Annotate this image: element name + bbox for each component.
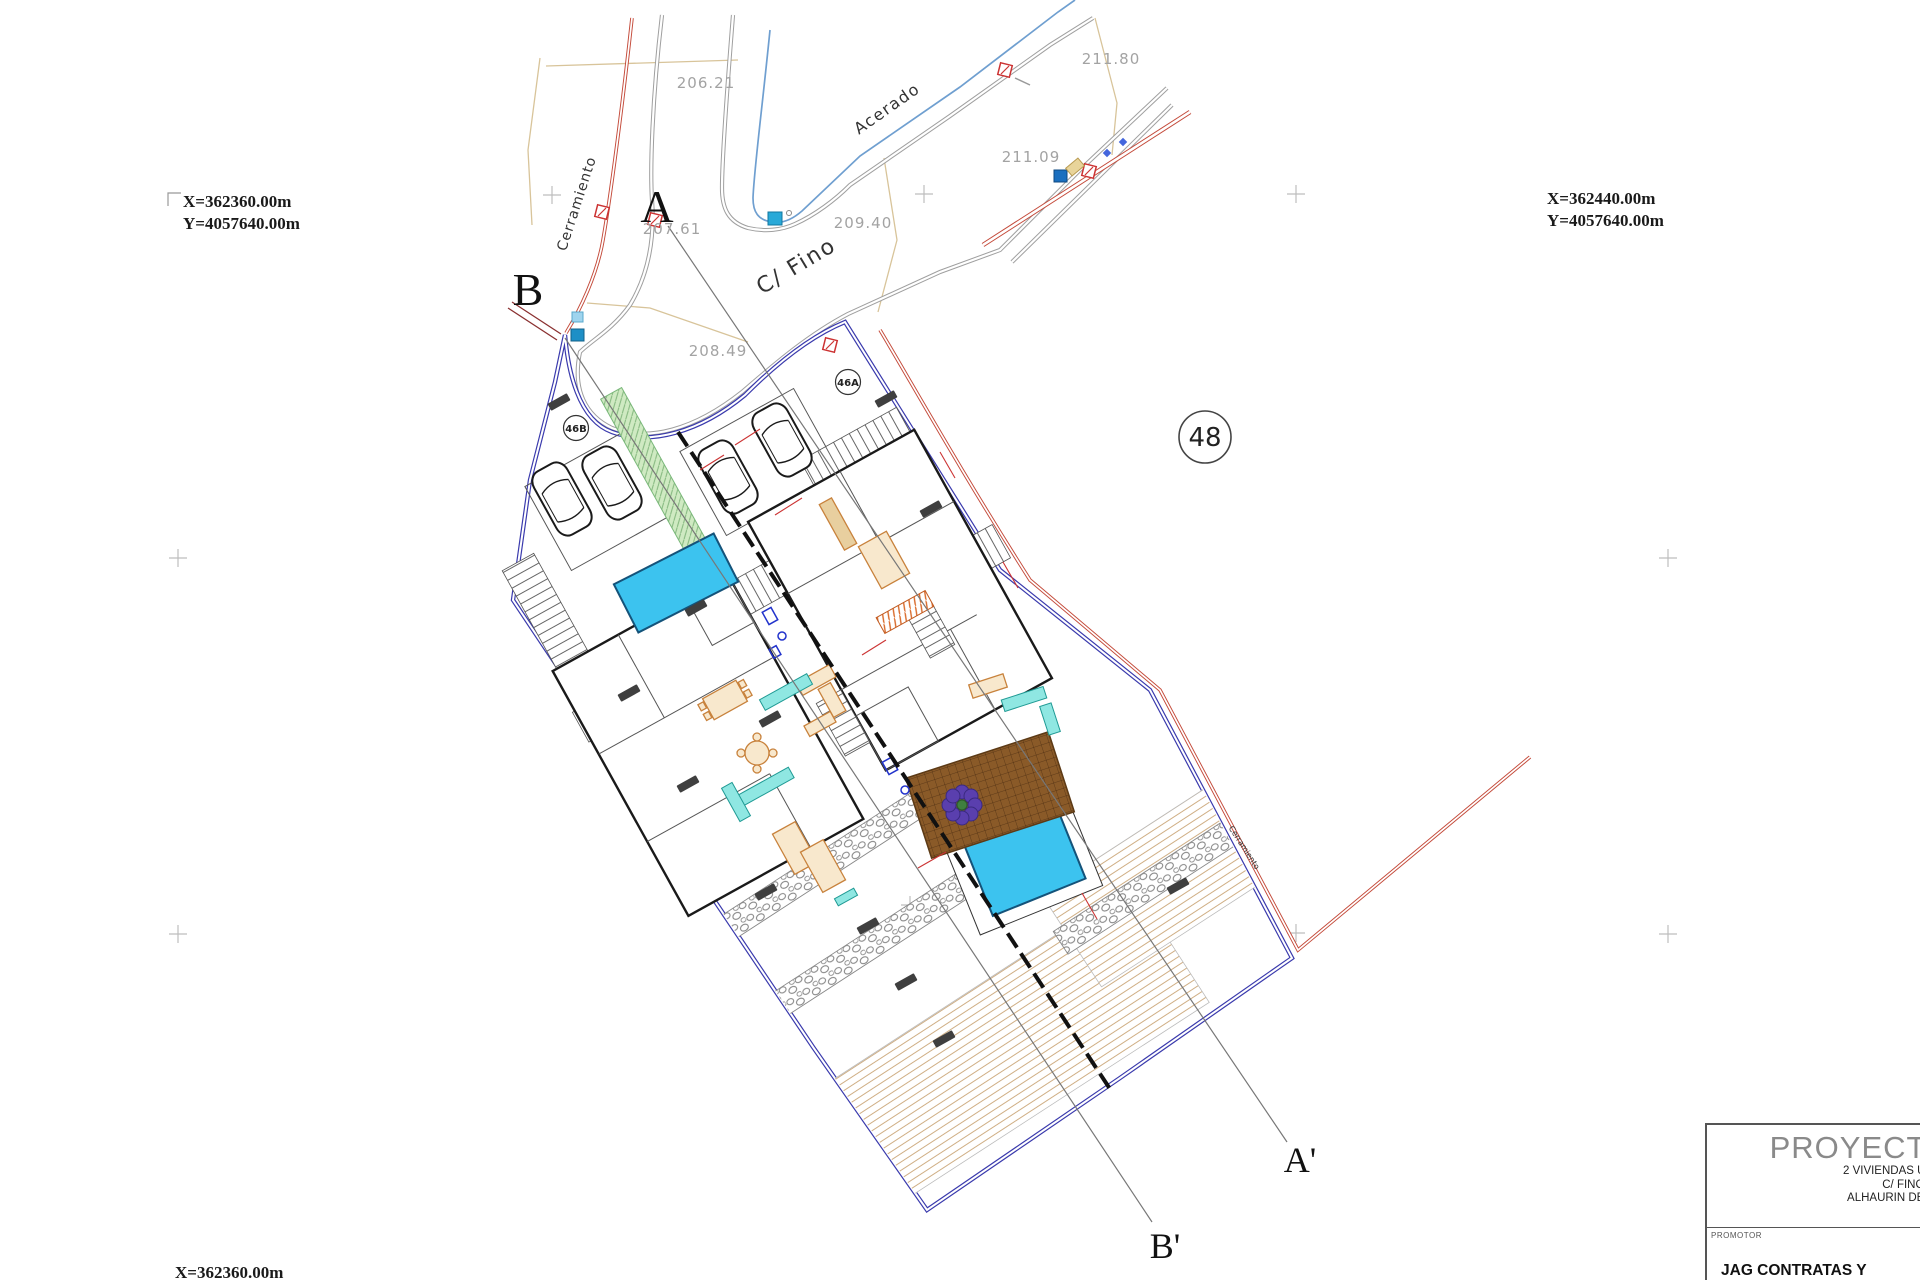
parcel-circle-46b: 46B	[564, 416, 589, 441]
site-plan-sheet: 46B 46A 48 206.21 207.61 208.49 209.40 2…	[0, 0, 1920, 1280]
project-title: PROYECTO	[1707, 1131, 1920, 1165]
elevation-211-80: 211.80	[1082, 50, 1141, 68]
title-block-project-cell: PROYECTO 2 VIVIENDAS UNIFA C/ FINO nº46 …	[1707, 1125, 1920, 1228]
mosaic-flower	[942, 785, 982, 825]
project-line2: C/ FINO nº46	[1707, 1179, 1920, 1193]
elevation-208-49: 208.49	[689, 342, 748, 360]
coord-top-left-x: X=362360.00m	[183, 192, 291, 211]
frame-corner-mark	[168, 193, 181, 206]
section-a-label: A	[640, 181, 673, 232]
parcel-48-label: 48	[1188, 423, 1221, 453]
title-block-promoter-cell: PROMOTOR JAG CONTRATAS Y	[1707, 1228, 1920, 1280]
parcel-circle-48: 48	[1179, 411, 1231, 463]
parcel-46b-label: 46B	[565, 424, 587, 435]
parcel-46a-label: 46A	[837, 378, 859, 389]
parcel-circle-46a: 46A	[836, 370, 861, 395]
site-plan-drawing: 46B 46A 48 206.21 207.61 208.49 209.40 2…	[0, 0, 1920, 1280]
project-line3: ALHAURIN DE LA T	[1707, 1192, 1920, 1206]
coord-top-left-y: Y=4057640.00m	[183, 214, 300, 233]
section-b-prime-label: B'	[1150, 1226, 1181, 1266]
elevation-209-40: 209.40	[834, 214, 893, 232]
promoter-label: PROMOTOR	[1711, 1231, 1920, 1240]
section-a-prime-label: A'	[1284, 1140, 1316, 1180]
coord-bottom-left-x: X=362360.00m	[175, 1263, 283, 1280]
street-name-label: C/ Fino	[752, 233, 841, 300]
fence-left-label: Cerramiento	[554, 155, 600, 253]
elevation-206-21: 206.21	[677, 74, 736, 92]
parcel-boundary-lines	[528, 18, 1117, 342]
title-block: PROYECTO 2 VIVIENDAS UNIFA C/ FINO nº46 …	[1705, 1123, 1920, 1280]
coord-top-right-y: Y=4057640.00m	[1547, 211, 1664, 230]
coord-top-right-x: X=362440.00m	[1547, 189, 1655, 208]
elevation-211-09: 211.09	[1002, 148, 1061, 166]
promoter-name: JAG CONTRATAS Y	[1721, 1262, 1920, 1280]
sidewalk-label: Acerado	[850, 79, 923, 138]
sidewalk-blue-line	[753, 0, 1075, 222]
section-b-label: B	[513, 264, 544, 315]
project-line1: 2 VIVIENDAS UNIFA	[1707, 1165, 1920, 1179]
